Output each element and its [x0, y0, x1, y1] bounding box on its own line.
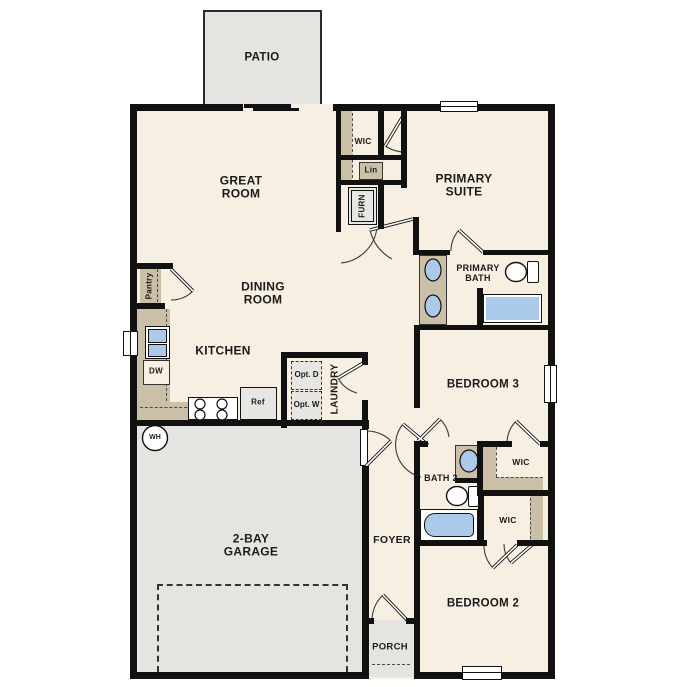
room-label-primary-bath: PRIMARY BATH: [447, 263, 509, 283]
wall-laundry-west: [281, 352, 287, 428]
wic-primary-shelf: [341, 111, 352, 180]
window-primary-suite: [440, 101, 478, 112]
wall-primarybath-top-left: [419, 250, 450, 255]
pantry-dash: [157, 269, 158, 302]
room-label-laundry: LAUNDRY: [329, 364, 340, 415]
room-label-bedroom3: BEDROOM 3: [447, 379, 519, 392]
kitchen-sink-basin-top: [148, 329, 167, 343]
wall-garage-top: [137, 420, 368, 426]
wall-bottom-left: [130, 672, 369, 679]
wall-wic-primary-east: [378, 111, 384, 155]
wall-porch-front-right: [406, 618, 414, 624]
optional-dryer-label: Opt. D: [295, 371, 319, 380]
wall-top-right: [478, 104, 555, 111]
shower-primary: [483, 294, 542, 323]
wall-lin-top: [341, 155, 407, 160]
range: [188, 397, 238, 420]
wall-garage-east-lower: [362, 466, 369, 679]
fixture-label-dw: DW: [149, 368, 163, 377]
wall-hall-east-lower: [414, 441, 420, 679]
optional-dryer-box: Opt. D: [291, 361, 322, 390]
wall-porch-front-left: [369, 618, 374, 624]
room-label-wic-bed3: WIC: [512, 458, 529, 468]
wall-wic-bed3-bottom: [477, 490, 548, 496]
wic-bed3-shelf-bottom: [483, 477, 543, 490]
wall-right-upper: [548, 104, 555, 365]
room-label-patio: PATIO: [245, 52, 280, 65]
wall-bedroom2-top-right: [517, 540, 548, 546]
wall-top-left: [130, 104, 243, 111]
wall-bedroom3-bottom-1: [414, 441, 428, 447]
wall-bedroom2-top-left: [414, 540, 487, 546]
wall-laundry-top: [281, 352, 368, 358]
wall-lin-bottom: [341, 180, 407, 185]
room-label-wic-bed2: WIC: [499, 516, 516, 526]
wall-hall-east-upper: [414, 330, 420, 408]
wall-greatroom-east: [336, 111, 341, 232]
wic-bed3-dash-h: [496, 477, 543, 478]
room-label-kitchen: KITCHEN: [195, 344, 250, 357]
room-label-lin: Lin: [365, 167, 378, 176]
room-label-wic-primary: WIC: [354, 137, 371, 147]
garage-door-outline: [157, 584, 348, 672]
wall-suite-west: [401, 111, 407, 188]
wall-bath2-vanity-stub: [455, 478, 483, 483]
wic-bed2-dash: [530, 498, 531, 539]
wic-primary-dash: [352, 113, 353, 178]
wall-furn-east: [378, 185, 384, 229]
wall-pantry-bottom: [137, 303, 165, 309]
fixture-label-wh: WH: [149, 434, 161, 442]
wall-laundry-east-upper: [362, 352, 368, 365]
bathtub-bath2-basin: [424, 513, 474, 537]
window-kitchen: [123, 331, 138, 356]
room-label-furn: FURN: [359, 194, 368, 217]
toilet-primary-tank: [527, 261, 539, 283]
wall-top-mid: [333, 104, 440, 111]
room-label-dining-room: DINING ROOM: [230, 281, 296, 308]
room-label-bedroom2: BEDROOM 2: [447, 598, 519, 611]
fixture-label-ref: Ref: [251, 399, 265, 408]
room-label-garage: 2-BAY GARAGE: [209, 533, 293, 560]
wall-bottom-mid: [414, 672, 463, 679]
wall-primarybath-top-right: [483, 250, 548, 255]
wall-bedroom3-bottom-3: [540, 441, 548, 447]
window-bedroom2: [462, 666, 502, 680]
wall-bedroom3-top: [414, 325, 548, 330]
wall-left-lower: [130, 356, 137, 679]
patio-slider-panel-2: [253, 108, 299, 112]
floor-plan: Opt. D Opt. W PATIO GREAT ROOM WIC Lin F…: [0, 0, 687, 687]
wall-wic-bed2-west: [478, 490, 484, 546]
wall-bottom-right: [502, 672, 555, 679]
kitchen-sink-basin-bottom: [148, 344, 167, 357]
porch-dash: [372, 664, 410, 665]
wall-wic-bed3-west: [477, 441, 483, 496]
wic-bed3-dash-v: [496, 447, 497, 477]
room-label-primary-suite: PRIMARY SUITE: [419, 173, 509, 200]
room-label-bath2: BATH 2: [423, 473, 459, 483]
optional-washer-box: Opt. W: [291, 391, 322, 420]
room-label-great-room: GREAT ROOM: [206, 175, 276, 202]
room-label-foyer: FOYER: [373, 535, 411, 547]
garage-door-slab: [360, 429, 368, 466]
room-label-porch: PORCH: [372, 643, 408, 654]
wall-left-upper: [130, 104, 137, 331]
room-label-pantry: Pantry: [146, 273, 155, 300]
optional-washer-label: Opt. W: [294, 401, 320, 410]
primary-vanity-counter: [419, 255, 447, 325]
wall-garage-east-upper: [362, 420, 369, 429]
window-bedroom3: [544, 365, 557, 403]
wall-pantry-top: [137, 263, 173, 269]
wall-bedroom3-bottom-2: [483, 441, 512, 447]
wall-shower-stub: [477, 288, 483, 325]
wic-bed2-shelf: [530, 496, 543, 540]
wall-right-lower: [548, 403, 555, 679]
